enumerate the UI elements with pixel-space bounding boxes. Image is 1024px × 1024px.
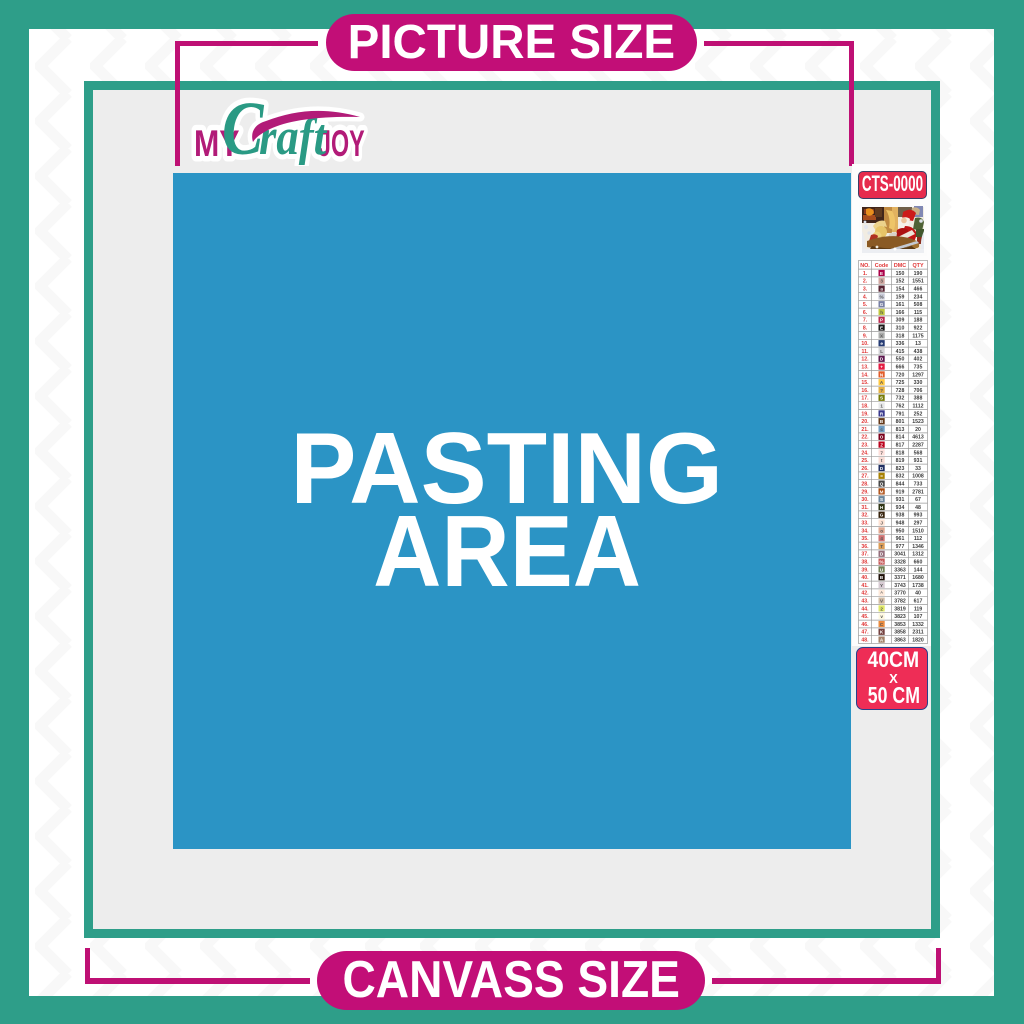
svg-text:Q: Q: [880, 482, 884, 487]
svg-text:706: 706: [914, 388, 923, 394]
svg-text:934: 934: [896, 505, 905, 511]
svg-text:107: 107: [914, 614, 923, 620]
svg-text:813: 813: [896, 427, 905, 433]
svg-text:18.: 18.: [861, 404, 869, 410]
svg-text:29.: 29.: [861, 489, 869, 495]
svg-text:8.: 8.: [863, 326, 868, 332]
svg-text:2781: 2781: [912, 489, 924, 495]
svg-text:832: 832: [896, 474, 905, 480]
svg-text:19.: 19.: [861, 411, 869, 417]
svg-text:?: ?: [880, 388, 883, 393]
svg-text:4613: 4613: [912, 435, 924, 441]
svg-text:3853: 3853: [894, 622, 906, 628]
svg-text:150: 150: [896, 271, 905, 277]
svg-text:4.: 4.: [863, 294, 868, 300]
svg-text:1510: 1510: [912, 528, 924, 534]
svg-text:36.: 36.: [861, 544, 869, 550]
svg-text:L: L: [880, 349, 883, 354]
svg-text:617: 617: [914, 599, 923, 605]
svg-text:159: 159: [896, 294, 905, 300]
svg-text:P: P: [880, 318, 883, 323]
svg-text:3770: 3770: [894, 591, 906, 597]
svg-text:922: 922: [914, 326, 923, 332]
svg-text:20: 20: [915, 427, 921, 433]
svg-text:Code: Code: [875, 263, 888, 269]
svg-text:16.: 16.: [861, 388, 869, 394]
svg-text:10.: 10.: [861, 341, 869, 347]
svg-text:43.: 43.: [861, 599, 869, 605]
svg-text:7.: 7.: [863, 318, 868, 324]
svg-text:13: 13: [915, 341, 921, 347]
svg-text:3823: 3823: [894, 614, 906, 620]
svg-text:190: 190: [914, 271, 923, 277]
svg-text:11.: 11.: [862, 349, 869, 355]
svg-text:2287: 2287: [912, 443, 924, 449]
svg-text:817: 817: [896, 443, 905, 449]
svg-text:o: o: [880, 528, 883, 533]
svg-text:112: 112: [914, 536, 922, 542]
svg-text:3041: 3041: [894, 552, 906, 558]
svg-text:1738: 1738: [912, 583, 924, 589]
svg-text:152: 152: [896, 279, 905, 285]
svg-text:48.: 48.: [861, 638, 869, 644]
svg-text:25.: 25.: [861, 458, 869, 464]
svg-text:961: 961: [896, 536, 905, 542]
svg-text:310: 310: [896, 326, 905, 332]
svg-text:E: E: [880, 326, 883, 331]
svg-text:818: 818: [896, 450, 905, 456]
svg-text:762: 762: [896, 404, 905, 410]
svg-text:38.: 38.: [861, 560, 869, 566]
svg-text:40: 40: [915, 591, 921, 597]
svg-text:3363: 3363: [894, 567, 906, 573]
svg-text:%: %: [880, 560, 884, 565]
svg-text:3863: 3863: [894, 638, 906, 644]
svg-text:2.: 2.: [863, 279, 868, 285]
svg-text:c: c: [880, 427, 883, 432]
svg-text:3.: 3.: [863, 287, 868, 293]
svg-text:720: 720: [896, 372, 905, 378]
svg-text:3743: 3743: [894, 583, 906, 589]
svg-text:2311: 2311: [912, 630, 923, 636]
svg-text:9.: 9.: [863, 333, 868, 339]
svg-text:1523: 1523: [912, 419, 924, 425]
svg-text:26.: 26.: [861, 466, 869, 472]
svg-text:1346: 1346: [912, 544, 924, 550]
svg-text:154: 154: [896, 287, 905, 293]
svg-text:977: 977: [896, 544, 905, 550]
svg-text:801: 801: [896, 419, 905, 425]
svg-text:20.: 20.: [861, 419, 869, 425]
svg-text:1: 1: [880, 404, 883, 409]
svg-text:1312: 1312: [912, 552, 924, 558]
svg-text:e: e: [880, 341, 883, 346]
svg-text:44.: 44.: [861, 606, 869, 612]
svg-text:1820: 1820: [912, 638, 924, 644]
svg-text:568: 568: [914, 450, 923, 456]
svg-text:728: 728: [896, 388, 905, 394]
svg-text:931: 931: [896, 497, 905, 503]
svg-text:39.: 39.: [861, 567, 869, 573]
svg-text:3: 3: [880, 279, 883, 284]
svg-text:252: 252: [914, 411, 923, 417]
svg-text:732: 732: [896, 396, 905, 402]
svg-text:7: 7: [880, 450, 883, 455]
svg-text:33: 33: [915, 466, 921, 472]
svg-text:37.: 37.: [861, 552, 869, 558]
svg-text:330: 330: [914, 380, 923, 386]
svg-text:40.: 40.: [861, 575, 869, 581]
svg-text:1551: 1551: [912, 279, 924, 285]
svg-text:NO.: NO.: [860, 263, 870, 269]
svg-text:24.: 24.: [861, 450, 869, 456]
svg-text:950: 950: [896, 528, 905, 534]
svg-text:115: 115: [914, 310, 922, 316]
svg-text:2: 2: [880, 606, 883, 611]
svg-text:733: 733: [914, 482, 923, 488]
svg-text:931: 931: [914, 458, 923, 464]
svg-text:948: 948: [896, 521, 905, 527]
svg-text:119: 119: [914, 606, 922, 612]
svg-text:161: 161: [896, 302, 905, 308]
svg-text:v: v: [880, 614, 883, 619]
svg-text:12.: 12.: [861, 357, 869, 363]
svg-text:938: 938: [896, 513, 905, 519]
svg-text:336: 336: [896, 341, 905, 347]
svg-text:388: 388: [914, 396, 923, 402]
svg-text:1.: 1.: [863, 271, 868, 277]
svg-text:T: T: [880, 544, 883, 549]
svg-text:21.: 21.: [861, 427, 869, 433]
svg-text:402: 402: [914, 357, 923, 363]
svg-text:3371: 3371: [894, 575, 906, 581]
svg-text:814: 814: [896, 435, 905, 441]
svg-text:6.: 6.: [863, 310, 868, 316]
svg-text:188: 188: [914, 318, 923, 324]
svg-text:27.: 27.: [861, 474, 869, 480]
svg-text:a: a: [880, 287, 883, 292]
svg-text:42.: 42.: [861, 591, 869, 597]
svg-text:48: 48: [915, 505, 921, 511]
svg-text:13.: 13.: [861, 365, 869, 371]
svg-text:844: 844: [896, 482, 905, 488]
svg-text:31.: 31.: [861, 505, 869, 511]
svg-text:309: 309: [896, 318, 905, 324]
svg-text:1297: 1297: [912, 372, 924, 378]
svg-text:1008: 1008: [912, 474, 924, 480]
svg-text:4: 4: [880, 536, 883, 541]
svg-text:41.: 41.: [861, 583, 869, 589]
svg-text:318: 318: [896, 333, 905, 339]
svg-text:3782: 3782: [894, 599, 906, 605]
svg-text:919: 919: [896, 489, 905, 495]
svg-text:819: 819: [896, 458, 905, 464]
svg-text:666: 666: [896, 365, 905, 371]
svg-text:32.: 32.: [861, 513, 869, 519]
svg-text:Y: Y: [880, 583, 883, 588]
svg-text:466: 466: [914, 287, 923, 293]
svg-text:823: 823: [896, 466, 905, 472]
svg-text:17.: 17.: [861, 396, 869, 402]
svg-text:166: 166: [896, 310, 905, 316]
svg-text:G: G: [880, 302, 884, 307]
svg-text:S: S: [880, 396, 883, 401]
svg-text:47.: 47.: [861, 630, 869, 636]
svg-text:5.: 5.: [863, 302, 868, 308]
svg-text:3858: 3858: [894, 630, 906, 636]
svg-text:1680: 1680: [912, 575, 924, 581]
svg-text:+: +: [880, 365, 883, 370]
svg-text:^: ^: [880, 591, 883, 596]
svg-text:15.: 15.: [861, 380, 869, 386]
svg-text:J: J: [880, 521, 883, 526]
svg-text:S: S: [880, 497, 883, 502]
svg-text:30.: 30.: [861, 497, 869, 503]
svg-text:1175: 1175: [912, 333, 923, 339]
svg-text:Z: Z: [880, 443, 883, 448]
svg-text:660: 660: [914, 560, 923, 566]
svg-text:3328: 3328: [894, 560, 906, 566]
svg-text:28.: 28.: [861, 482, 869, 488]
svg-text:1332: 1332: [912, 622, 924, 628]
svg-text:725: 725: [896, 380, 905, 386]
svg-text:46.: 46.: [861, 622, 869, 628]
svg-text:33.: 33.: [861, 521, 869, 527]
svg-text:QTY: QTY: [912, 263, 923, 269]
svg-text:234: 234: [914, 294, 923, 300]
svg-text:23.: 23.: [861, 443, 869, 449]
svg-text:14.: 14.: [861, 372, 869, 378]
svg-text:h: h: [880, 310, 883, 315]
svg-text:1112: 1112: [913, 404, 924, 410]
svg-text:=: =: [880, 474, 883, 479]
svg-text:M: M: [880, 489, 884, 494]
svg-text:O: O: [880, 435, 884, 440]
svg-text:34.: 34.: [861, 528, 869, 534]
svg-text:%: %: [880, 294, 884, 299]
svg-text:550: 550: [896, 357, 905, 363]
svg-text:144: 144: [914, 567, 923, 573]
svg-text:735: 735: [914, 365, 923, 371]
svg-text:35.: 35.: [861, 536, 869, 542]
svg-text:3819: 3819: [894, 606, 906, 612]
svg-text:508: 508: [914, 302, 923, 308]
svg-text:791: 791: [896, 411, 905, 417]
svg-text:E: E: [880, 271, 883, 276]
svg-text:993: 993: [914, 513, 923, 519]
svg-text:45.: 45.: [861, 614, 869, 620]
svg-text:67: 67: [915, 497, 921, 503]
svg-text:G: G: [880, 513, 884, 518]
svg-text:22.: 22.: [861, 435, 869, 441]
svg-text:438: 438: [914, 349, 923, 355]
svg-text:415: 415: [896, 349, 905, 355]
svg-text:297: 297: [914, 521, 923, 527]
svg-text:DMC: DMC: [894, 263, 906, 269]
